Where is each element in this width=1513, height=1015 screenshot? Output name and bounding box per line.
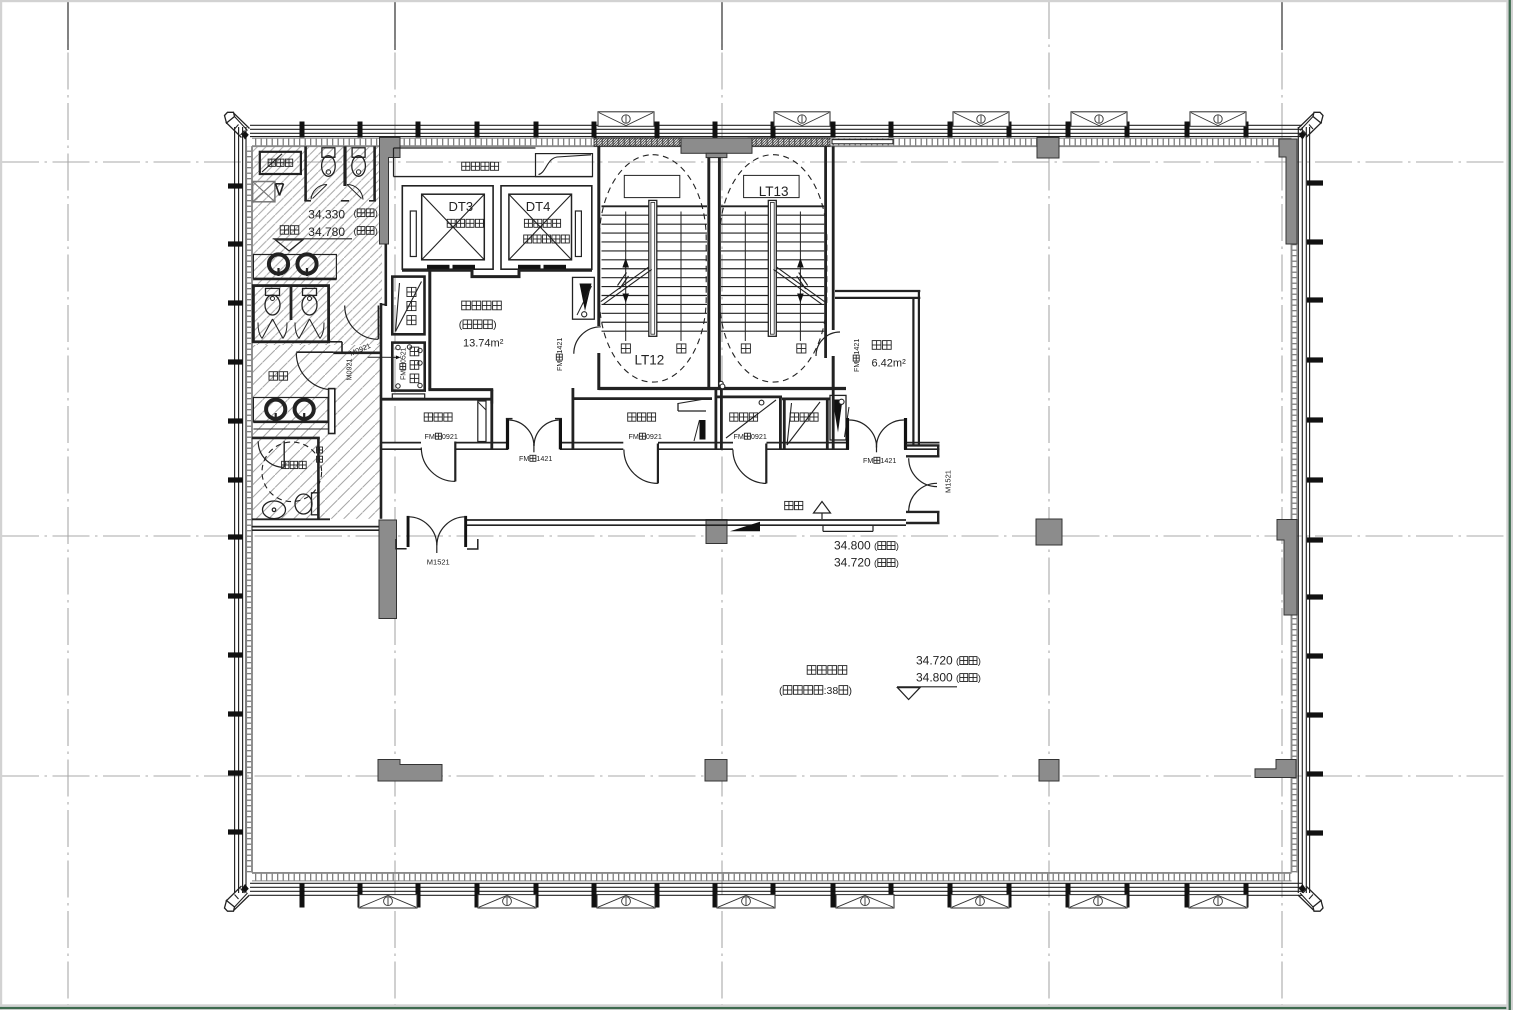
svg-text:FM: FM xyxy=(852,362,861,372)
svg-text:1421: 1421 xyxy=(880,456,896,465)
svg-text:34.720: 34.720 xyxy=(834,556,871,570)
svg-text:FM: FM xyxy=(425,432,435,441)
svg-text:13.74m²: 13.74m² xyxy=(463,338,504,350)
svg-text:6.42m²: 6.42m² xyxy=(872,357,907,369)
svg-text:): ) xyxy=(978,656,981,667)
svg-text:34.330: 34.330 xyxy=(308,207,345,221)
svg-text:): ) xyxy=(493,319,497,331)
svg-text:FM: FM xyxy=(863,456,873,465)
svg-text:FM: FM xyxy=(555,361,564,371)
svg-text:FM: FM xyxy=(734,432,744,441)
svg-text:(: ( xyxy=(459,319,463,331)
svg-text:): ) xyxy=(849,685,853,697)
svg-text:0921: 0921 xyxy=(751,432,767,441)
svg-text:FM: FM xyxy=(400,370,407,380)
svg-text:34.720: 34.720 xyxy=(916,654,953,668)
svg-text:34.780: 34.780 xyxy=(308,225,345,239)
svg-text:M0921: M0921 xyxy=(345,359,354,381)
svg-text:0921: 0921 xyxy=(442,432,458,441)
svg-text:M1521: M1521 xyxy=(427,558,450,567)
svg-text:): ) xyxy=(896,558,899,569)
svg-text::38: :38 xyxy=(824,685,839,697)
svg-text:LT12: LT12 xyxy=(635,353,665,368)
svg-text:DT3: DT3 xyxy=(449,199,474,214)
svg-text:): ) xyxy=(896,541,899,552)
svg-text:1421: 1421 xyxy=(852,339,861,355)
svg-text:DT4: DT4 xyxy=(526,199,551,214)
svg-text:FM: FM xyxy=(519,454,529,463)
svg-text:M1521: M1521 xyxy=(944,470,953,493)
svg-text:(: ( xyxy=(779,685,783,697)
svg-text:0921: 0921 xyxy=(646,432,662,441)
svg-text:): ) xyxy=(375,208,378,218)
svg-text:34.800: 34.800 xyxy=(834,539,871,553)
svg-text:): ) xyxy=(375,226,378,236)
svg-text:FM: FM xyxy=(629,432,639,441)
svg-text:LT13: LT13 xyxy=(759,184,789,199)
svg-text:): ) xyxy=(978,673,981,684)
svg-text:34.800: 34.800 xyxy=(916,671,953,685)
svg-text:1421: 1421 xyxy=(536,454,552,463)
svg-text:1421: 1421 xyxy=(555,338,564,354)
svg-text:0521: 0521 xyxy=(400,347,407,363)
